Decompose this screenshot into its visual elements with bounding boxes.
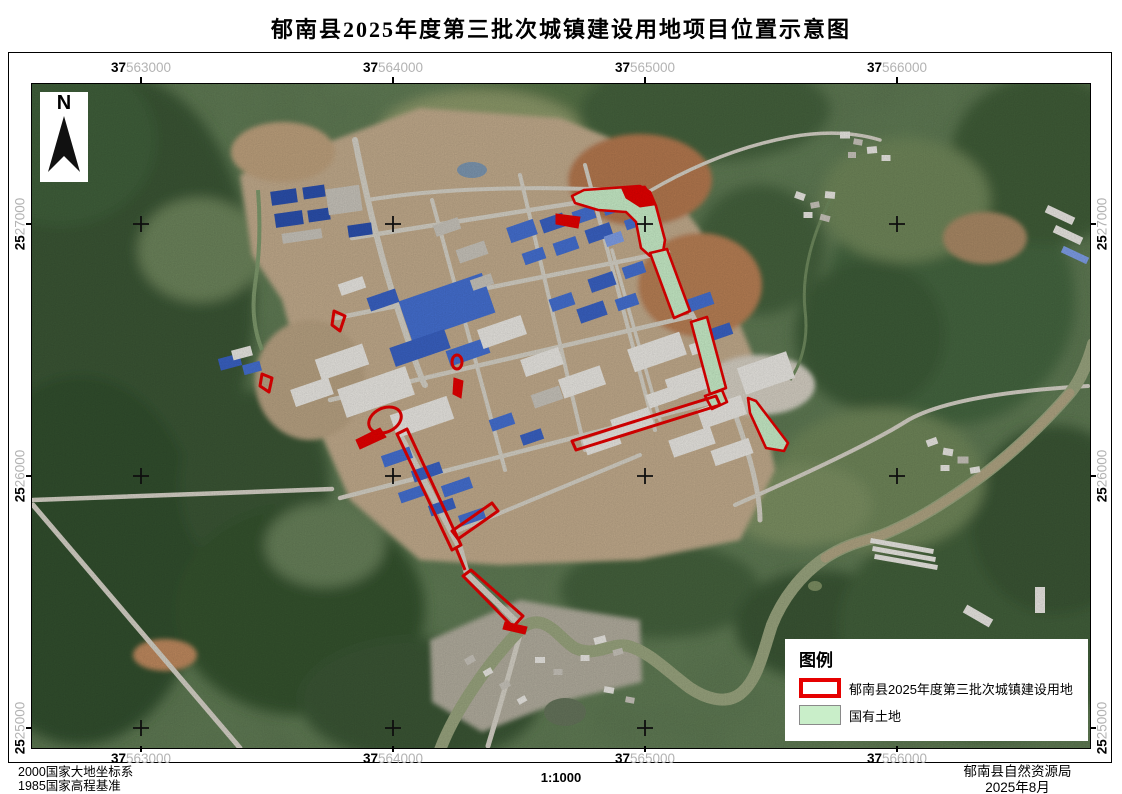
grid-tick bbox=[392, 77, 394, 83]
legend-item-state-land: 国有土地 bbox=[799, 705, 1088, 725]
legend-item-project: 郁南县2025年度第三批次城镇建设用地 bbox=[799, 678, 1088, 698]
grid-tick bbox=[896, 77, 898, 83]
grid-coordinate-label: 37565000 bbox=[615, 60, 675, 75]
grid-tick bbox=[1090, 475, 1096, 477]
legend-title: 图例 bbox=[799, 646, 1088, 671]
grid-coordinate-label: 2527000 bbox=[1095, 198, 1110, 251]
map-sheet: 郁南县2025年度第三批次城镇建设用地项目位置示意图 bbox=[0, 0, 1122, 794]
grid-tick bbox=[140, 746, 142, 752]
grid-coordinate-label: 2525000 bbox=[1095, 702, 1110, 755]
agency-name: 郁南县自然资源局 bbox=[930, 764, 1105, 780]
grid-coordinate-label: 37565000 bbox=[615, 751, 675, 766]
grid-coordinate-label: 37566000 bbox=[867, 751, 927, 766]
legend-item-label: 郁南县2025年度第三批次城镇建设用地 bbox=[849, 679, 1073, 698]
project-parcel-swatch bbox=[799, 678, 841, 698]
legend-item-label: 国有土地 bbox=[849, 706, 901, 725]
agency-info: 郁南县自然资源局 2025年8月 bbox=[930, 764, 1105, 794]
grid-coordinate-label: 37564000 bbox=[363, 751, 423, 766]
grid-coordinate-label: 37563000 bbox=[111, 751, 171, 766]
grid-tick bbox=[1090, 223, 1096, 225]
grid-tick bbox=[1090, 727, 1096, 729]
legend-box: 图例 郁南县2025年度第三批次城镇建设用地 国有土地 bbox=[785, 639, 1088, 741]
grid-tick bbox=[140, 77, 142, 83]
north-arrow: N bbox=[40, 92, 88, 182]
grid-tick bbox=[896, 746, 898, 752]
grid-coordinate-label: 37564000 bbox=[363, 60, 423, 75]
grid-coordinate-label: 37566000 bbox=[867, 60, 927, 75]
north-label: N bbox=[40, 92, 88, 114]
state-land-swatch bbox=[799, 705, 841, 725]
grid-tick bbox=[26, 727, 32, 729]
map-date: 2025年8月 bbox=[930, 780, 1105, 794]
grid-coordinate-label: 37563000 bbox=[111, 60, 171, 75]
grid-tick bbox=[26, 223, 32, 225]
grid-tick bbox=[644, 746, 646, 752]
page-title: 郁南县2025年度第三批次城镇建设用地项目位置示意图 bbox=[0, 12, 1122, 44]
grid-tick bbox=[644, 77, 646, 83]
north-arrow-icon bbox=[40, 114, 88, 178]
grid-coordinate-label: 2526000 bbox=[1095, 450, 1110, 503]
grid-tick bbox=[26, 475, 32, 477]
grid-tick bbox=[392, 746, 394, 752]
